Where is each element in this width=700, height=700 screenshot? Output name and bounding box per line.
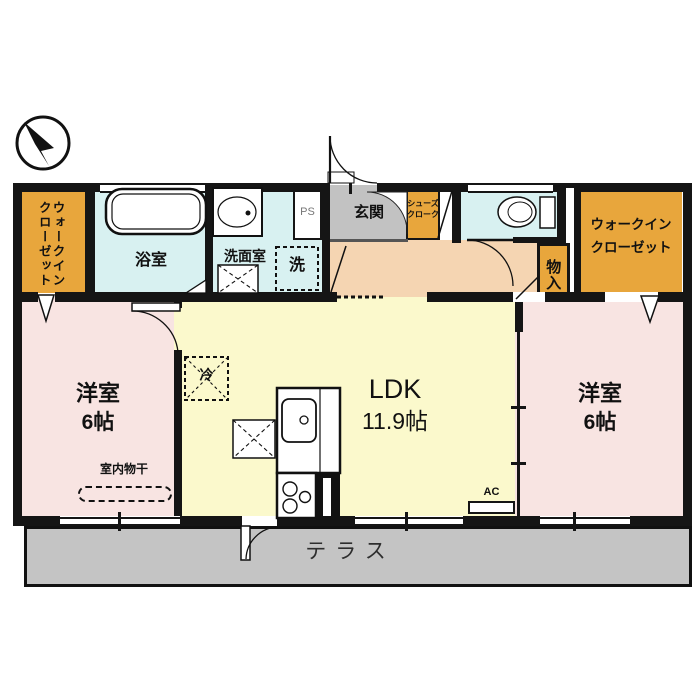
label-bedroom-right-name: 洋室 xyxy=(538,380,662,409)
label-bedroom-left-size: 6帖 xyxy=(38,409,158,436)
label-storage: 物入 xyxy=(544,252,561,298)
indoor-drying-rail xyxy=(78,486,172,502)
wall xyxy=(322,183,330,302)
label-wic-right-line1: ウォークイン xyxy=(580,214,682,237)
wall xyxy=(205,183,328,192)
wall xyxy=(13,516,60,526)
partition-tick xyxy=(511,406,526,409)
wall xyxy=(427,292,513,302)
label-wic-left-line1: ウォークイン xyxy=(50,198,64,290)
room-hallway xyxy=(330,240,537,297)
wall xyxy=(22,292,38,302)
wall-right xyxy=(683,183,692,526)
sliding-partition xyxy=(517,332,520,516)
label-washer: 洗 xyxy=(276,257,318,275)
label-ldk: LDK11.9帖 xyxy=(330,373,460,436)
window-tick xyxy=(573,512,576,531)
ac-unit xyxy=(468,501,515,514)
wall xyxy=(658,292,692,302)
partition-tick xyxy=(511,462,526,465)
label-terrace: テラス xyxy=(285,540,415,564)
wall-left xyxy=(13,183,22,526)
window-tick xyxy=(349,176,352,194)
label-ps: PS xyxy=(293,206,322,219)
wall xyxy=(515,292,523,332)
window-bath-top xyxy=(100,183,205,193)
label-bedroom-left: 洋室6帖 xyxy=(38,380,158,436)
window-tick xyxy=(118,512,121,531)
room-bathroom xyxy=(95,185,205,297)
label-bedroom-right: 洋室6帖 xyxy=(538,380,662,436)
label-indoor-drying: 室内物干 xyxy=(78,463,170,477)
label-wic-left-line2: クローゼット xyxy=(36,198,50,290)
room-toilet xyxy=(461,185,557,243)
label-bedroom-left-name: 洋室 xyxy=(38,380,158,409)
entrance-step-edge xyxy=(330,239,408,242)
label-wic-right: ウォークインクローゼット xyxy=(580,214,682,260)
wall xyxy=(174,292,182,308)
wall xyxy=(557,185,566,243)
window-ldk xyxy=(355,517,463,526)
label-ldk-name: LDK xyxy=(330,373,460,407)
wall xyxy=(513,237,566,243)
label-bath: 浴室 xyxy=(118,252,184,270)
floor-plan: ウォークインクローゼット 浴室 洗面室 洗 PS 玄関 シューズクローク 物入 … xyxy=(0,0,700,700)
label-shoe-closet: シューズクローク xyxy=(405,198,441,220)
label-genkan: 玄関 xyxy=(336,204,402,221)
wall-cavity xyxy=(566,188,574,240)
wall xyxy=(452,185,461,243)
wall xyxy=(174,350,182,516)
label-bedroom-right-size: 6帖 xyxy=(538,409,662,436)
label-wic-right-line2: クローゼット xyxy=(580,237,682,260)
window-bedroom-right xyxy=(540,517,630,526)
wall xyxy=(463,516,540,526)
wall xyxy=(277,516,355,526)
terrace-door-opening xyxy=(242,516,277,526)
entrance-door-swing xyxy=(330,136,377,183)
label-washroom: 洗面室 xyxy=(214,248,276,264)
wall xyxy=(85,185,95,302)
window-toilet-top xyxy=(468,183,553,193)
wall xyxy=(55,292,337,302)
label-shoe-line2: クローク xyxy=(405,209,441,220)
label-ac: AC xyxy=(468,486,515,499)
wall xyxy=(205,183,213,302)
label-ldk-size: 11.9帖 xyxy=(330,407,460,436)
label-shoe-line1: シューズ xyxy=(405,198,441,209)
compass-north-icon xyxy=(12,112,74,174)
wall xyxy=(180,516,242,526)
wall xyxy=(630,516,692,526)
window-tick xyxy=(405,512,408,531)
label-wic-left: ウォークインクローゼット xyxy=(36,198,64,290)
label-fridge: 冷 xyxy=(185,367,228,383)
